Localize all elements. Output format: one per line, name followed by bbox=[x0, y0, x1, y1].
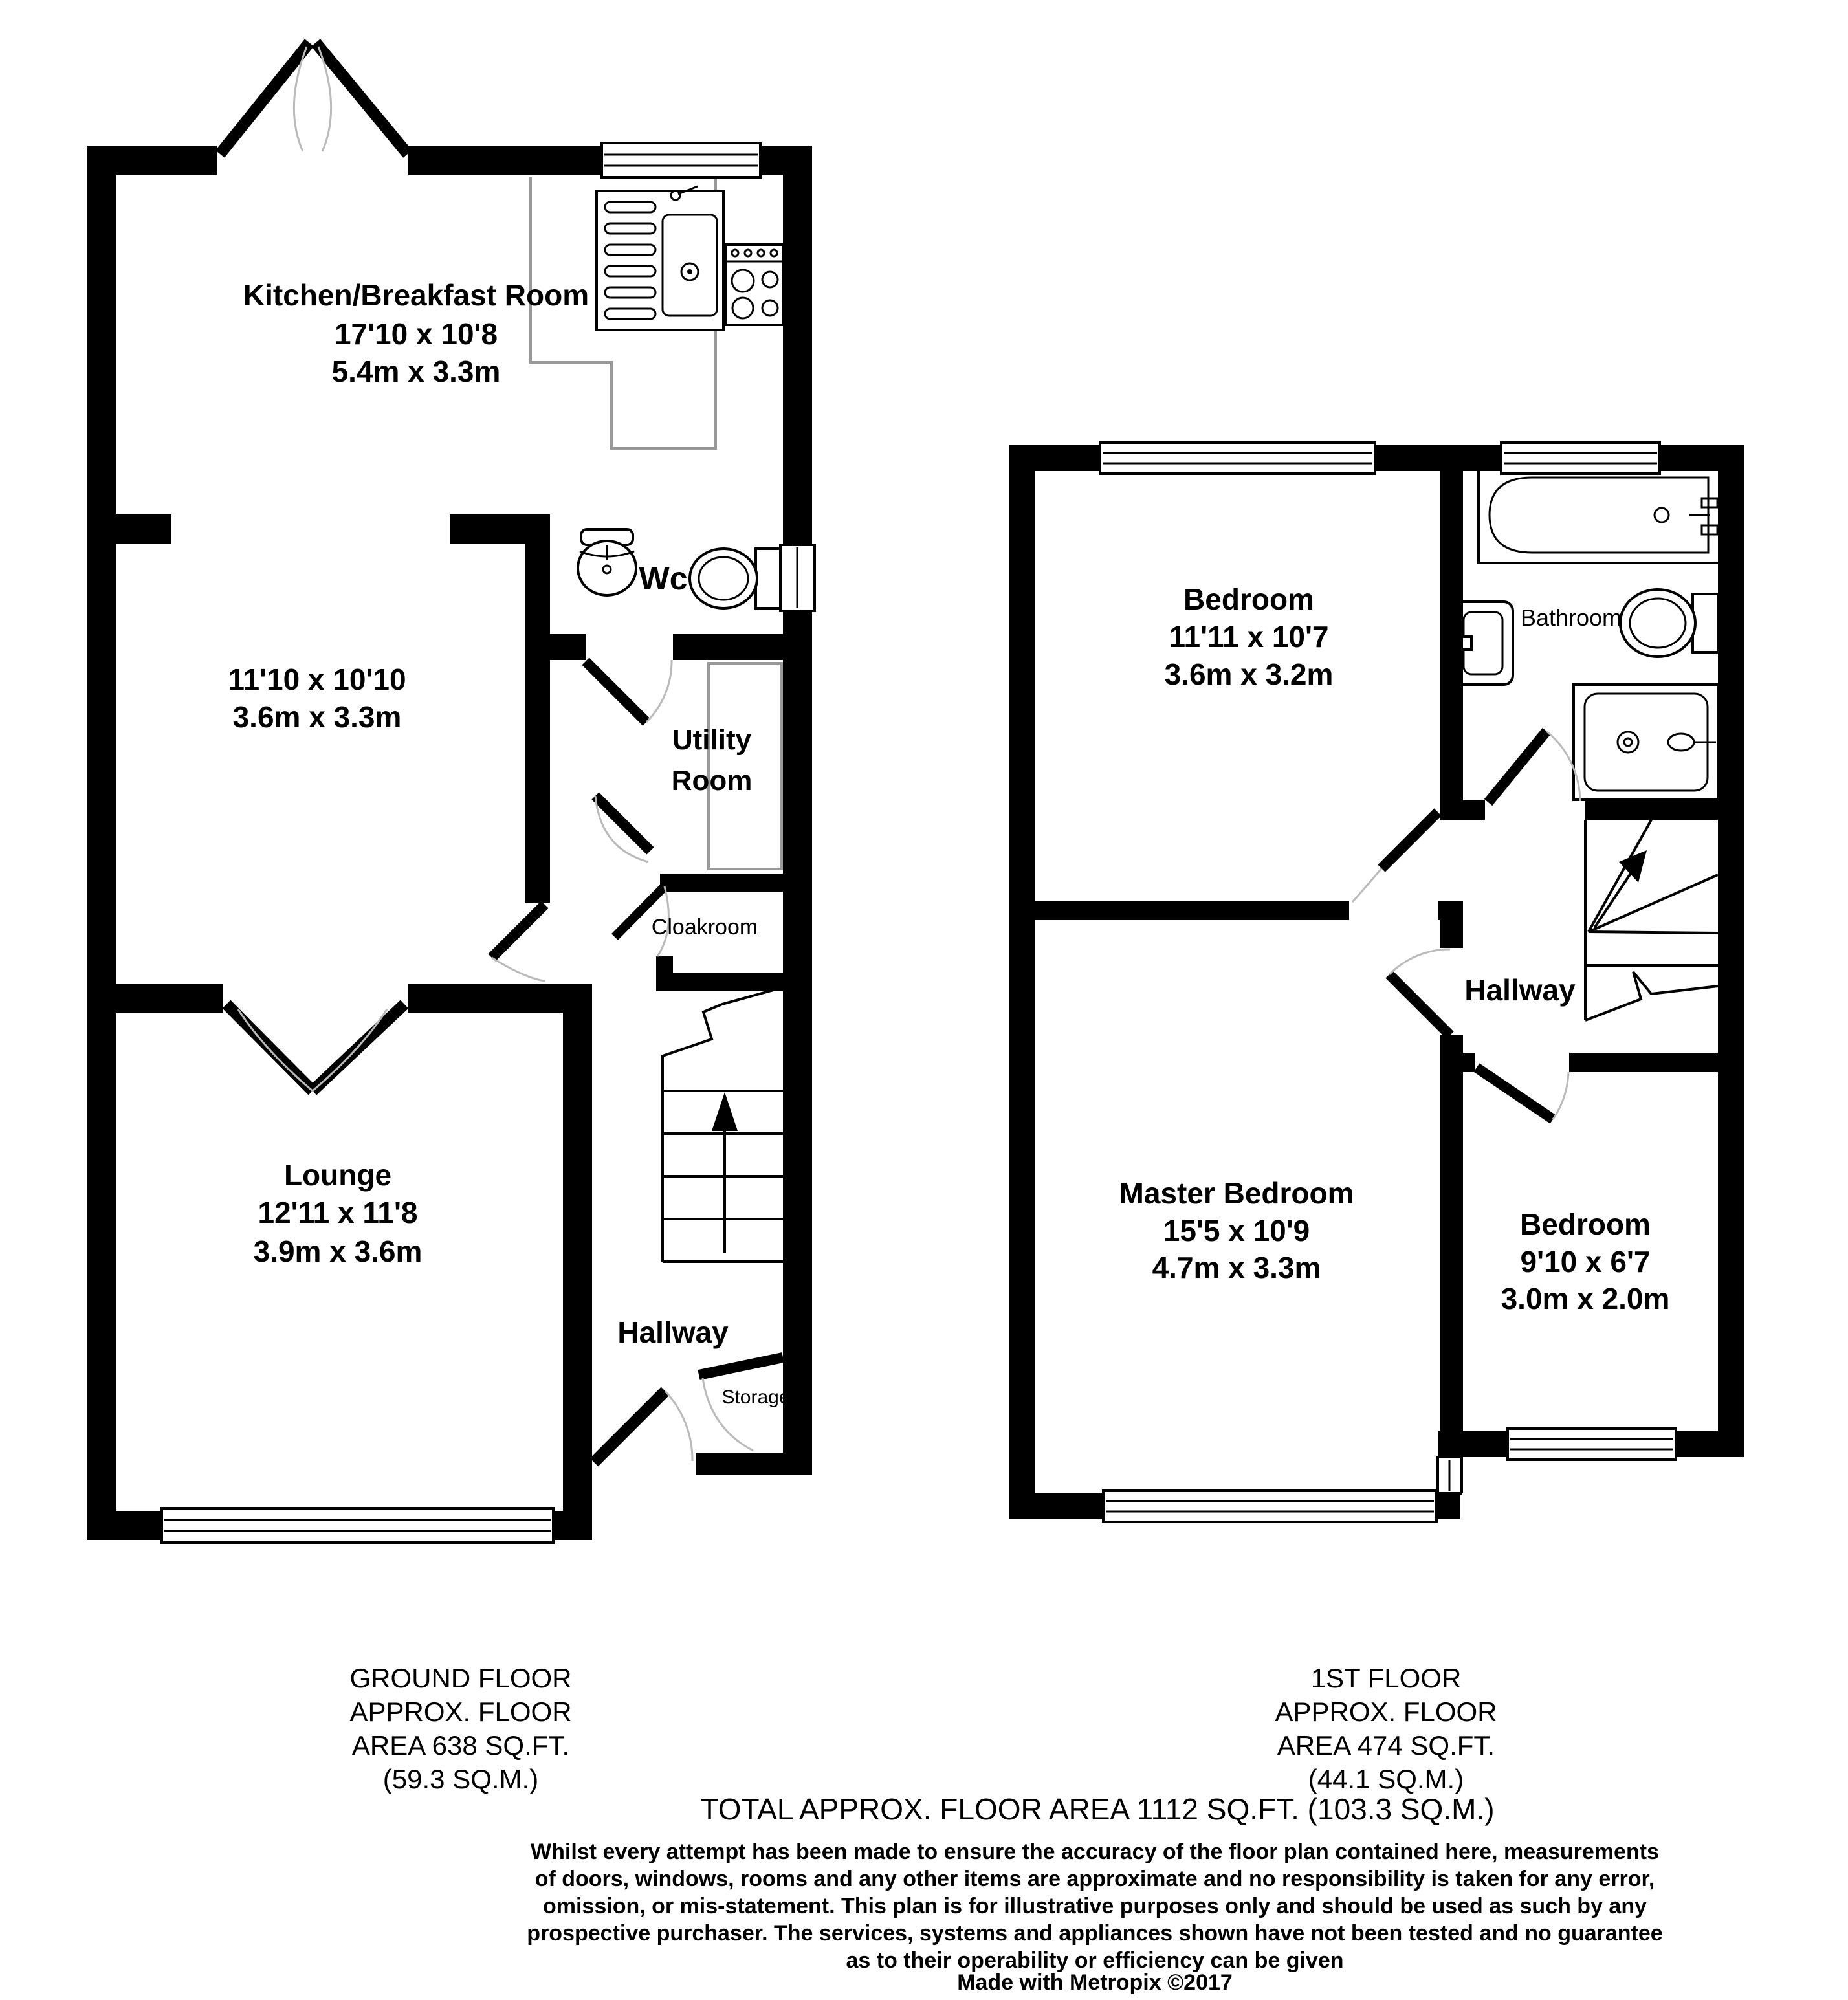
disclaimer-line3: omission, or mis-statement. This plan is… bbox=[543, 1895, 1647, 1918]
lounge-label: Lounge bbox=[284, 1159, 391, 1191]
first-area-line4: (44.1 SQ.M.) bbox=[1308, 1765, 1464, 1794]
wc-toilet-icon bbox=[690, 549, 782, 608]
master-size-imperial: 15'5 x 10'9 bbox=[1163, 1215, 1310, 1246]
ground-area-line1: GROUND FLOOR bbox=[349, 1664, 571, 1693]
disclaimer-line2: of doors, windows, rooms and any other i… bbox=[535, 1868, 1655, 1891]
disclaimer-line1: Whilst every attempt has been made to en… bbox=[531, 1841, 1659, 1864]
cloakroom-label: Cloakroom bbox=[652, 916, 758, 940]
kitchen-sink-icon bbox=[597, 186, 723, 330]
first-floor-plan bbox=[1009, 443, 1744, 1522]
kitchen-size-metric: 5.4m x 3.3m bbox=[332, 356, 501, 387]
disclaimer-line4: prospective purchaser. The services, sys… bbox=[527, 1922, 1662, 1946]
bedroom3-size-metric: 3.0m x 2.0m bbox=[1501, 1283, 1670, 1314]
reception-size-imperial: 11'10 x 10'10 bbox=[228, 664, 406, 695]
floorplan-page: Kitchen/Breakfast Room 17'10 x 10'8 5.4m… bbox=[0, 0, 1848, 2000]
lounge-size-metric: 3.9m x 3.6m bbox=[254, 1236, 423, 1267]
bedroom2-size-metric: 3.6m x 3.2m bbox=[1165, 659, 1334, 690]
first-area-line3: AREA 474 SQ.FT. bbox=[1277, 1731, 1495, 1760]
reception-size-metric: 3.6m x 3.3m bbox=[233, 701, 402, 732]
metropix-credit: Made with Metropix ©2017 bbox=[957, 1972, 1233, 1995]
first-floor-stairs bbox=[1585, 820, 1718, 1020]
bathroom-label: Bathroom bbox=[1521, 606, 1622, 630]
first-area-line2: APPROX. FLOOR bbox=[1275, 1698, 1497, 1726]
stove-icon bbox=[726, 245, 783, 325]
ground-area-line3: AREA 638 SQ.FT. bbox=[352, 1731, 569, 1760]
bathtub-icon bbox=[1479, 467, 1719, 563]
shower-icon bbox=[1574, 685, 1719, 800]
total-area-label: TOTAL APPROX. FLOOR AREA 1112 SQ.FT. (10… bbox=[700, 1794, 1494, 1825]
kitchen-size-imperial: 17'10 x 10'8 bbox=[335, 318, 498, 349]
bedroom3-label: Bedroom bbox=[1520, 1209, 1651, 1240]
wc-basin-icon bbox=[578, 529, 636, 595]
ground-area-line2: APPROX. FLOOR bbox=[349, 1698, 571, 1726]
bedroom2-label: Bedroom bbox=[1183, 584, 1314, 615]
bedroom3-size-imperial: 9'10 x 6'7 bbox=[1521, 1246, 1651, 1277]
disclaimer-line5: as to their operability or efficiency ca… bbox=[846, 1950, 1343, 1973]
utility-label-line2: Room bbox=[672, 766, 753, 796]
utility-label-line1: Utility bbox=[672, 725, 751, 755]
hallway-label-first: Hallway bbox=[1464, 974, 1575, 1005]
lounge-size-imperial: 12'11 x 11'8 bbox=[258, 1197, 417, 1228]
master-size-metric: 4.7m x 3.3m bbox=[1152, 1252, 1321, 1283]
bedroom2-size-imperial: 11'11 x 10'7 bbox=[1169, 621, 1328, 652]
wc-label: Wc bbox=[639, 562, 688, 596]
kitchen-label: Kitchen/Breakfast Room bbox=[243, 280, 589, 311]
stairs-up-arrow bbox=[712, 1092, 738, 1131]
bathroom-toilet-icon bbox=[1620, 589, 1719, 657]
master-bedroom-label: Master Bedroom bbox=[1119, 1178, 1354, 1209]
ground-area-line4: (59.3 SQ.M.) bbox=[383, 1765, 538, 1794]
hallway-label-ground: Hallway bbox=[617, 1317, 728, 1348]
storage-label: Storage bbox=[721, 1387, 789, 1408]
ground-floor-stairs bbox=[663, 987, 783, 1262]
first-area-line1: 1ST FLOOR bbox=[1311, 1664, 1462, 1693]
